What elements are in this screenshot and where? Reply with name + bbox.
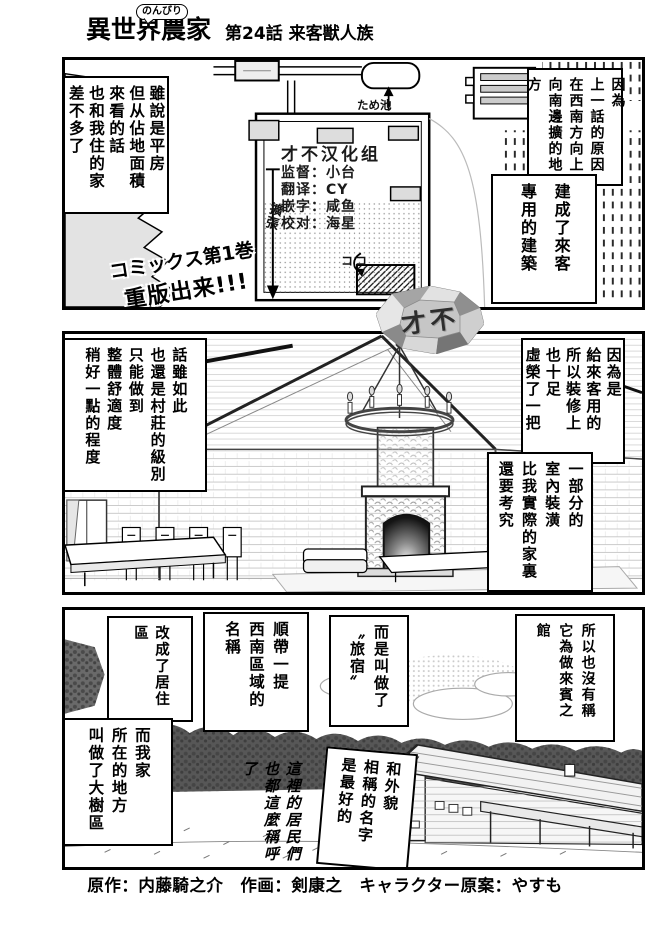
panel-1-map: ため池 擴張 ココ 才不汉化组 监督：小台 翻译：CY 嵌字：咸鱼 校对：海星 …	[62, 57, 645, 310]
panel-2-interior: 話雖如此 也還是村莊的級別 只能做到 整體舒適度 稍好一點的程度 因為是 給來客…	[62, 331, 645, 595]
pond	[362, 63, 419, 88]
speech-bubble: 而我家 所在的地方 叫做了大樹區	[63, 718, 173, 846]
scanlation-role: 嵌字：咸鱼	[281, 199, 381, 216]
scanlation-group: 才不汉化组	[281, 140, 381, 165]
speech-text: 改成了居住區	[129, 625, 171, 713]
speech-text: 建成了來客 專用的建築	[510, 183, 577, 295]
speech-bubble: 一部分的 室內裝潢 比我實際的家裏 還要考究	[487, 452, 593, 592]
speech-bubble: 建成了來客 專用的建築	[491, 174, 597, 304]
speech-text: 順帶一提 西南區域的 名稱	[220, 621, 292, 723]
speech-bubble: 所以也沒有稱 它為做來賓之館	[515, 614, 615, 742]
speech-bubble: 因為 上一話的原因 在西南方向上 向南邊擴的地方	[527, 68, 623, 186]
page-title: 異世界のんびり農家第24話 来客獣人族	[86, 10, 374, 56]
speech-text: 所以也沒有稱 它為做來賓之館	[531, 623, 598, 733]
speech-text: 一部分的 室內裝潢 比我實際的家裏 還要考究	[494, 461, 587, 583]
manga-page: 異世界のんびり農家第24話 来客獣人族	[0, 0, 650, 933]
title-furigana-bubble: のんびり	[136, 4, 188, 20]
speech-bubble: 雖說是平房 但从佔地面積 來看的話 也和我住的家 差不多了	[63, 76, 169, 214]
gem-logo: 才不	[376, 286, 484, 354]
building-3	[389, 126, 419, 140]
speech-text: 話雖如此 也還是村莊的級別 只能做到 整體舒適度 稍好一點的程度	[81, 347, 190, 483]
panel-3-exterior: 改成了居住區 而我家 所在的地方 叫做了大樹區 順帶一提 西南區域的 名稱 這裡…	[62, 607, 645, 870]
building-4	[391, 187, 421, 201]
author-credits: 原作：内藤騎之介 作画：剣康之 キャラクター原案：やすも	[0, 872, 650, 896]
speech-bubble: 改成了居住區	[107, 616, 193, 722]
speech-bubble: 順帶一提 西南區域的 名稱	[203, 612, 309, 732]
speech-text: 雖說是平房 但从佔地面積 來看的話 也和我住的家 差不多了	[66, 85, 167, 205]
here-label: ココ	[341, 252, 369, 269]
speech-bubble: 因為是 給來客用的 所以裝修上 也十足 虛榮了一把	[521, 338, 625, 464]
pond-label: ため池	[357, 97, 392, 113]
speech-bubble: 話雖如此 也還是村莊的級別 只能做到 整體舒適度 稍好一點的程度	[63, 338, 207, 492]
speech-text: 因為 上一話的原因 在西南方向上 向南邊擴的地方	[523, 77, 628, 177]
speech-text: 而我家 所在的地方 叫做了大樹區	[83, 727, 153, 837]
scanlation-role: 监督：小台	[281, 165, 381, 182]
handwritten-note: 這裡的居民們 也都這麼稱呼了	[229, 754, 311, 870]
speech-text: 因為是 給來客用的 所以裝修上 也十足 虛榮了一把	[522, 347, 623, 455]
speech-bubble: 和外貌 相稱的名字 是最好的	[316, 746, 418, 870]
speech-text: 和外貌 相稱的名字 是最好的	[329, 756, 405, 862]
speech-bubble: 而是叫做了 〝旅宿〟	[329, 615, 409, 727]
handwritten-text: 這裡的居民們 也都這麼稱呼了	[237, 761, 302, 869]
speech-text: 而是叫做了 〝旅宿〟	[345, 624, 393, 718]
roof-chimney	[565, 764, 575, 776]
scanlation-credits: 才不汉化组 监督：小台 翻译：CY 嵌字：咸鱼 校对：海星	[281, 140, 381, 233]
building-1	[249, 121, 279, 141]
scanlation-role: 校对：海星	[281, 216, 381, 233]
fireplace-mantel	[362, 486, 449, 496]
scanlation-role: 翻译：CY	[281, 182, 381, 199]
chapter-title: 第24話 来客獣人族	[225, 19, 374, 46]
